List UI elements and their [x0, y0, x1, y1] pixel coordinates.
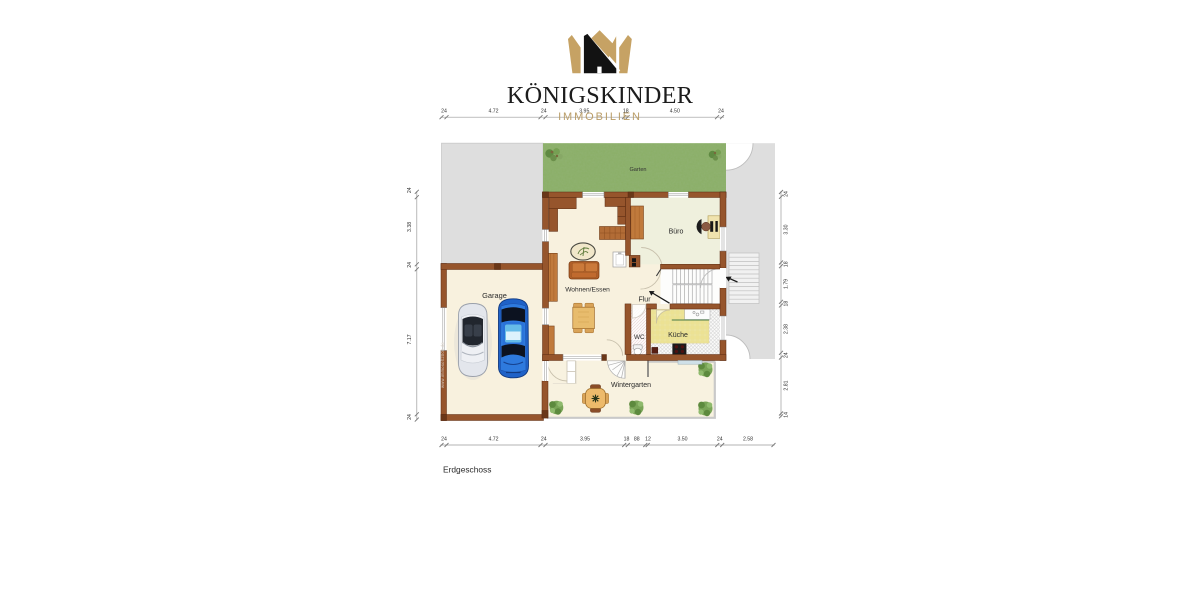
- svg-text:Wohnen/Essen: Wohnen/Essen: [565, 286, 610, 293]
- svg-text:24: 24: [407, 187, 413, 193]
- svg-text:18: 18: [784, 301, 790, 307]
- svg-text:24: 24: [407, 414, 413, 420]
- svg-text:18: 18: [784, 261, 790, 267]
- svg-text:24: 24: [541, 436, 547, 442]
- svg-text:2.38: 2.38: [784, 324, 790, 334]
- svg-text:24: 24: [718, 109, 724, 115]
- svg-text:24: 24: [784, 352, 790, 358]
- svg-text:3.38: 3.38: [407, 222, 413, 232]
- svg-text:24: 24: [717, 436, 723, 442]
- svg-text:WC: WC: [634, 334, 645, 341]
- svg-text:4.72: 4.72: [488, 436, 498, 442]
- svg-text:4.50: 4.50: [670, 109, 680, 115]
- svg-text:Garage: Garage: [482, 291, 507, 300]
- svg-text:Flur: Flur: [638, 297, 651, 304]
- svg-text:Erdgeschoss: Erdgeschoss: [443, 465, 491, 475]
- svg-text:KÖNIGSKINDER: KÖNIGSKINDER: [507, 82, 694, 109]
- svg-text:7.17: 7.17: [407, 334, 413, 344]
- svg-text:Wintergarten: Wintergarten: [611, 382, 651, 389]
- svg-text:24: 24: [407, 262, 413, 268]
- svg-text:3.50: 3.50: [677, 436, 687, 442]
- svg-text:18: 18: [624, 436, 630, 442]
- svg-text:14: 14: [784, 412, 790, 418]
- svg-text:Büro: Büro: [669, 229, 684, 236]
- svg-text:2.81: 2.81: [784, 380, 790, 390]
- svg-text:12: 12: [645, 436, 651, 442]
- svg-text:2.58: 2.58: [743, 436, 753, 442]
- svg-text:24: 24: [541, 109, 547, 115]
- svg-text:4.72: 4.72: [488, 109, 498, 115]
- svg-text:1.79: 1.79: [784, 279, 790, 289]
- svg-text:www.immosoft2000.de: www.immosoft2000.de: [440, 342, 445, 388]
- svg-text:24: 24: [441, 109, 447, 115]
- svg-text:3.95: 3.95: [580, 436, 590, 442]
- svg-text:24: 24: [784, 191, 790, 197]
- svg-text:Küche: Küche: [668, 332, 688, 339]
- svg-text:3.30: 3.30: [784, 224, 790, 234]
- svg-text:24: 24: [441, 436, 447, 442]
- svg-text:IMMOBILIEN: IMMOBILIEN: [558, 111, 642, 123]
- svg-text:Garten: Garten: [629, 167, 646, 173]
- svg-text:88: 88: [634, 436, 640, 442]
